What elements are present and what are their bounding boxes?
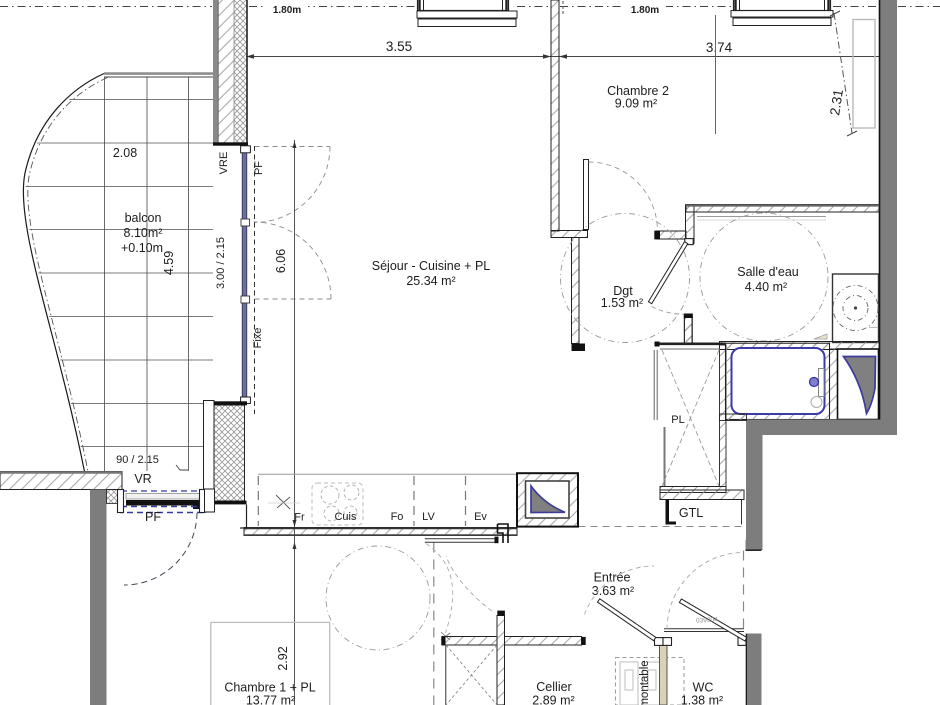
svg-text:3.55: 3.55 (386, 39, 412, 54)
svg-text:1.80m: 1.80m (631, 5, 659, 16)
svg-text:VR: VR (134, 472, 151, 486)
svg-text:1.80m: 1.80m (273, 5, 301, 16)
svg-text:Fr: Fr (294, 512, 305, 524)
svg-text:PF: PF (145, 510, 161, 524)
svg-text:GTL: GTL (679, 506, 703, 520)
svg-text:PL: PL (671, 414, 684, 426)
svg-text:4.59: 4.59 (162, 251, 176, 275)
svg-text:Cuis: Cuis (334, 511, 357, 523)
svg-text:25.34 m²: 25.34 m² (406, 274, 455, 288)
svg-text:Entrée: Entrée (594, 571, 631, 585)
svg-text:Cellier: Cellier (536, 680, 571, 694)
svg-text:90 / 2.15: 90 / 2.15 (116, 454, 159, 466)
svg-text:9.09 m²: 9.09 m² (615, 97, 657, 111)
svg-text:2.08: 2.08 (113, 146, 137, 160)
svg-text:montable: montable (639, 660, 651, 705)
svg-text:1.38 m²: 1.38 m² (681, 694, 723, 705)
svg-text:4.40 m²: 4.40 m² (745, 280, 787, 294)
svg-text:Chambre 1 + PL: Chambre 1 + PL (224, 681, 315, 695)
svg-text:LV: LV (422, 511, 435, 523)
svg-text:3.74: 3.74 (706, 40, 733, 55)
svg-text:Salle d'eau: Salle d'eau (737, 265, 799, 279)
svg-text:1.53 m²: 1.53 m² (601, 296, 643, 310)
svg-text:+0.10m: +0.10m (121, 241, 163, 255)
svg-text:2.89 m²: 2.89 m² (532, 694, 574, 705)
svg-text:Fixe: Fixe (252, 328, 264, 349)
svg-text:2.92: 2.92 (276, 646, 290, 670)
svg-text:Ev: Ev (474, 511, 487, 523)
svg-text:13.77 m²: 13.77 m² (246, 694, 295, 705)
svg-text:balcon: balcon (125, 211, 162, 225)
svg-text:VRE: VRE (218, 152, 230, 175)
svg-text:Séjour - Cuisine + PL: Séjour - Cuisine + PL (372, 259, 491, 273)
svg-text:8.10m²: 8.10m² (124, 226, 163, 240)
svg-text:6.06: 6.06 (274, 249, 288, 273)
svg-text:Fo: Fo (391, 511, 404, 523)
svg-text:3.00 / 2.15: 3.00 / 2.15 (215, 237, 227, 289)
svg-text:WC: WC (693, 681, 714, 695)
